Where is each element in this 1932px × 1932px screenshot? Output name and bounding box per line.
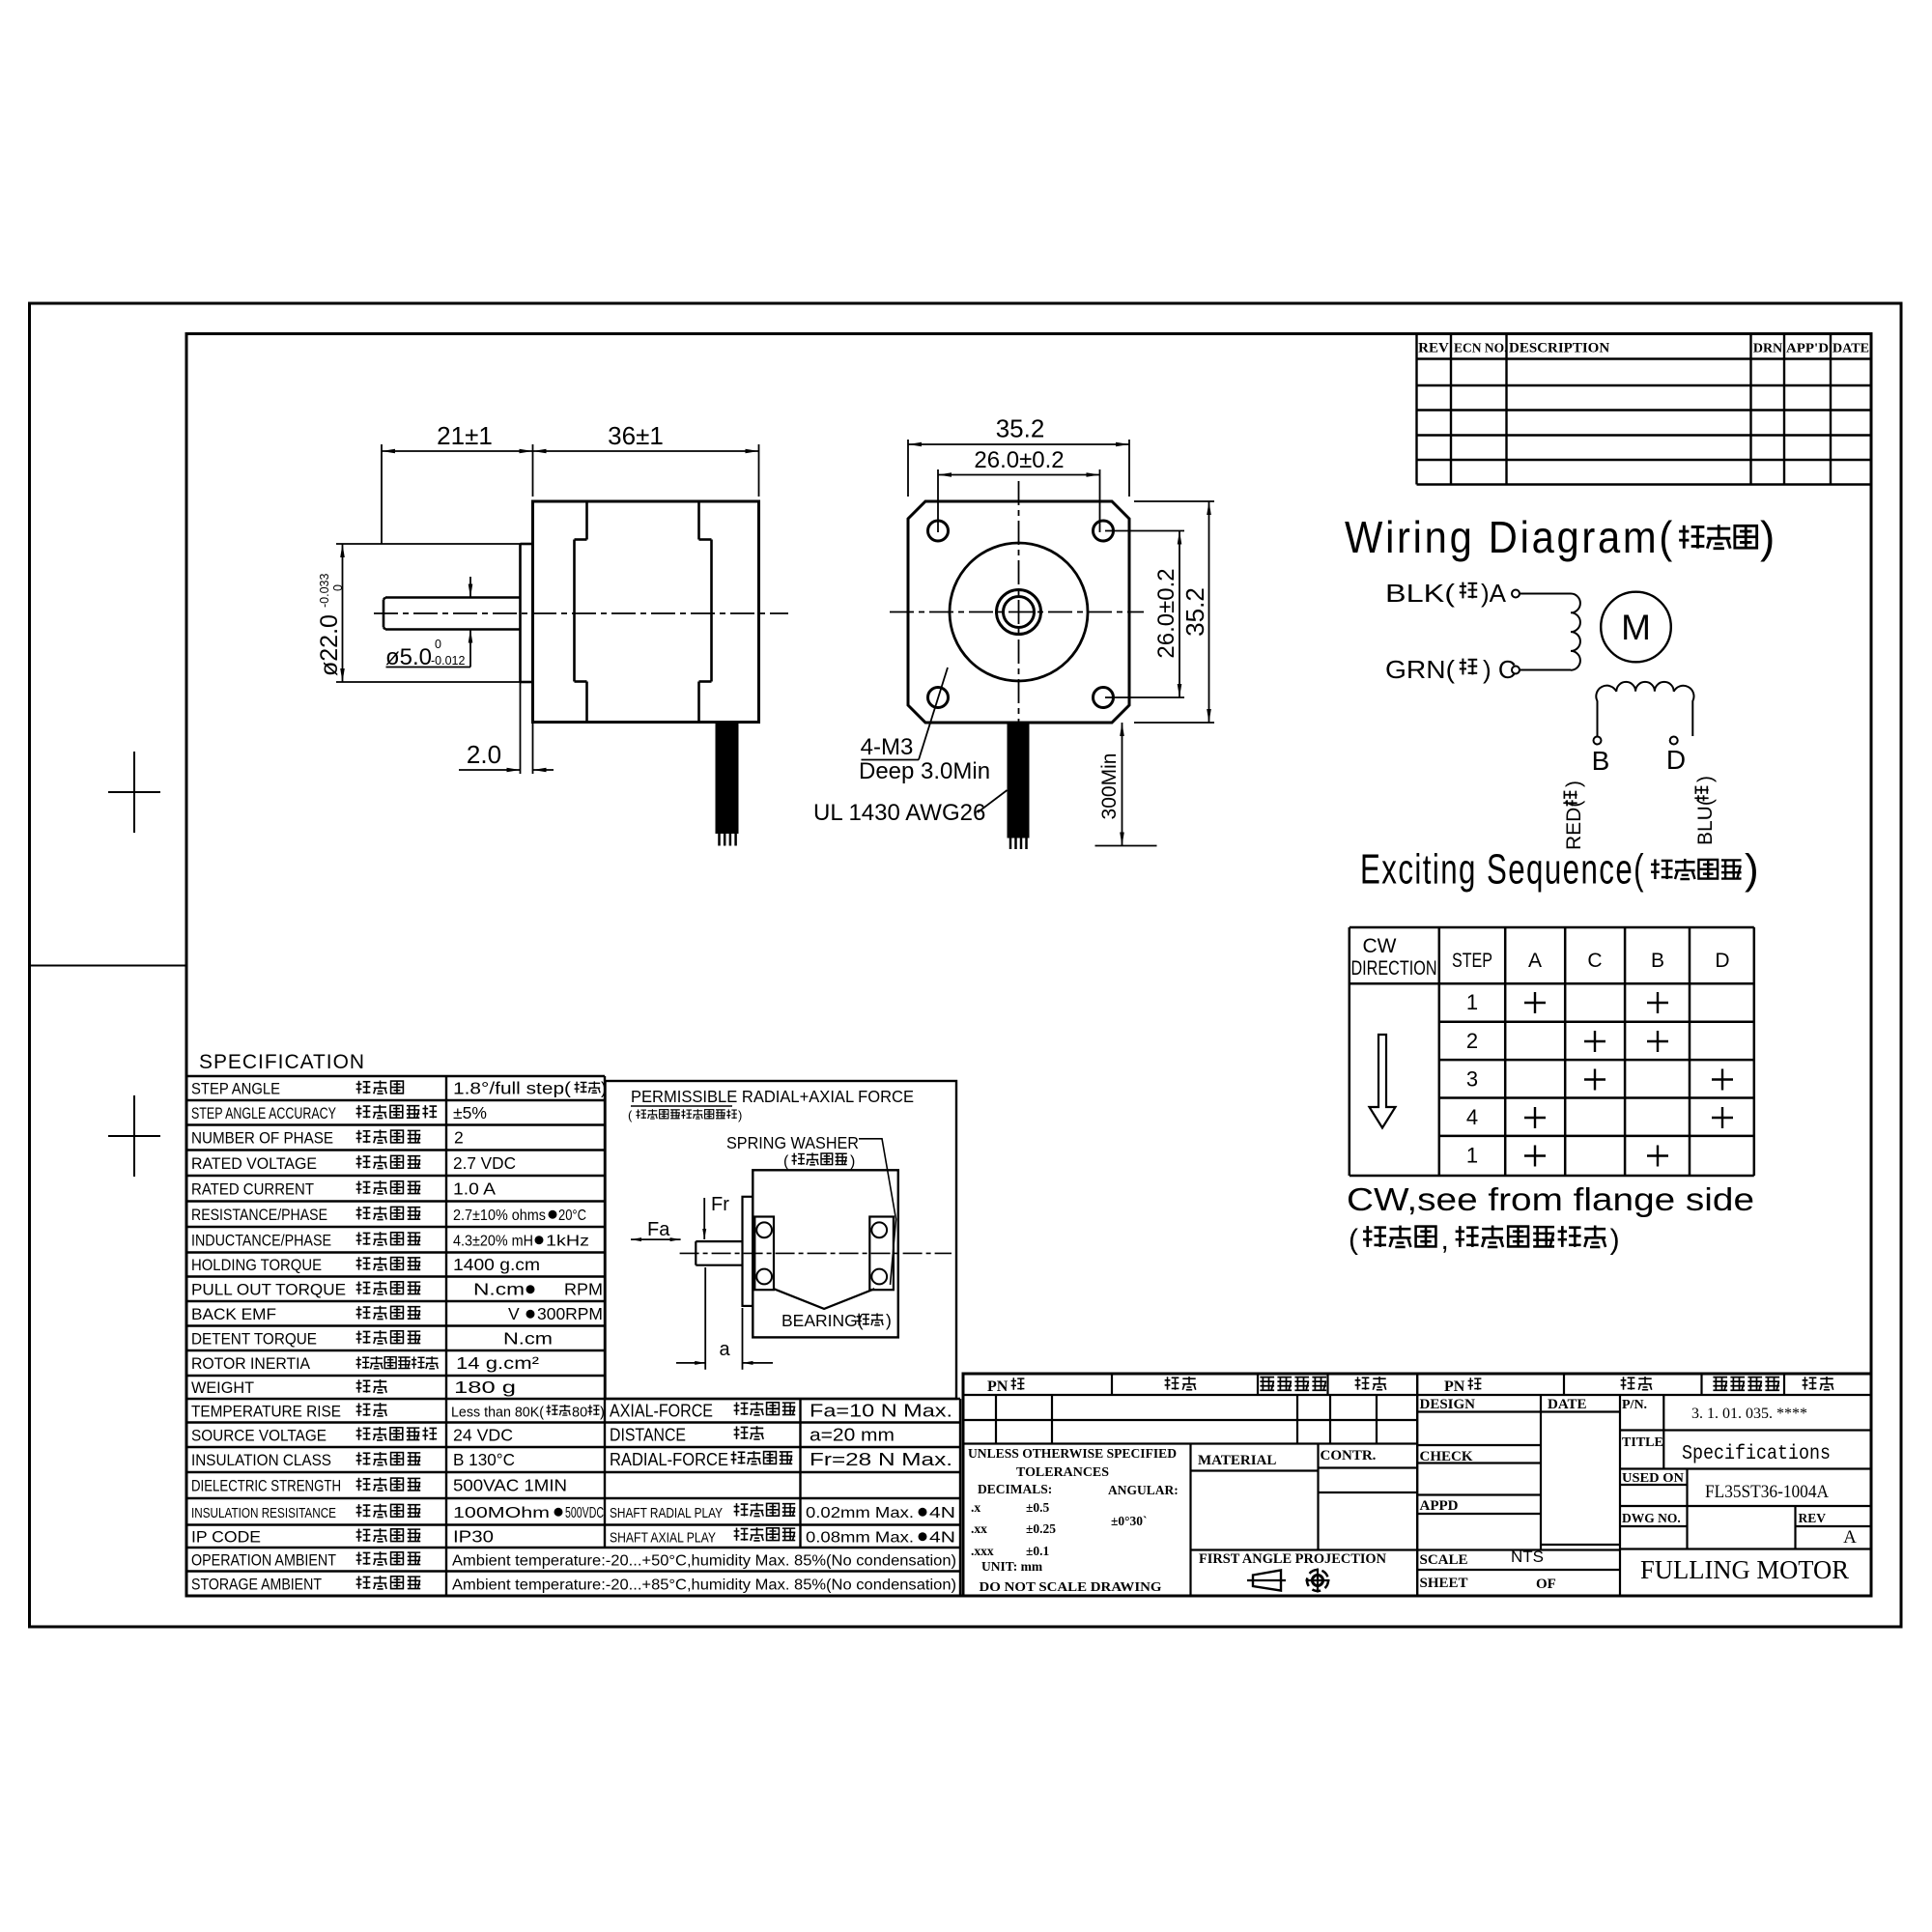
svg-text:GRN(: GRN( (1385, 655, 1455, 684)
svg-text:DWG NO.: DWG NO. (1622, 1511, 1681, 1525)
svg-text:UNIT: mm: UNIT: mm (981, 1559, 1043, 1574)
svg-text:B: B (1651, 950, 1664, 972)
svg-text:1kHz: 1kHz (546, 1233, 589, 1249)
svg-text:): ) (1563, 781, 1585, 787)
svg-text:USED ON: USED ON (1622, 1470, 1684, 1485)
svg-text:2: 2 (454, 1128, 464, 1148)
svg-text:DETENT TORQUE: DETENT TORQUE (191, 1330, 317, 1348)
svg-text:N.cm: N.cm (473, 1279, 525, 1298)
svg-text:24 VDC: 24 VDC (453, 1425, 513, 1444)
svg-text:RPM: RPM (564, 1279, 603, 1298)
svg-text:1400 g.cm: 1400 g.cm (453, 1255, 540, 1274)
svg-text:MATERIAL: MATERIAL (1198, 1453, 1276, 1468)
svg-text:): ) (850, 1153, 855, 1170)
svg-text:2.7 VDC: 2.7 VDC (453, 1153, 516, 1173)
svg-text:): ) (738, 1108, 742, 1122)
svg-text:SHEET: SHEET (1420, 1576, 1468, 1591)
svg-text:2.0: 2.0 (467, 740, 501, 769)
svg-text:Ambient temperature:-20...+85°: Ambient temperature:-20...+85°C,humidity… (452, 1577, 956, 1593)
svg-text:Fr: Fr (711, 1194, 729, 1215)
svg-text:±0.25: ±0.25 (1026, 1521, 1056, 1536)
svg-text:FL35ST36-1004A: FL35ST36-1004A (1705, 1482, 1829, 1502)
svg-text:±0.5: ±0.5 (1026, 1500, 1050, 1515)
svg-text:Fr=28 N Max.: Fr=28 N Max. (810, 1450, 952, 1469)
svg-text:)A: )A (1481, 579, 1507, 608)
svg-text:-0.012: -0.012 (431, 654, 465, 668)
svg-text:SPECIFICATION: SPECIFICATION (199, 1051, 365, 1073)
svg-text:A: A (1528, 950, 1542, 972)
svg-text:RATED VOLTAGE: RATED VOLTAGE (191, 1155, 317, 1173)
svg-text:1: 1 (1466, 990, 1478, 1014)
svg-text:C: C (1587, 950, 1602, 972)
svg-text:TITLE: TITLE (1622, 1435, 1663, 1450)
svg-text:B 130°C: B 130°C (453, 1450, 515, 1469)
svg-text:Exciting Sequence(: Exciting Sequence( (1360, 846, 1645, 894)
svg-text:ANGULAR:: ANGULAR: (1108, 1483, 1179, 1497)
svg-text:FULLING MOTOR: FULLING MOTOR (1640, 1555, 1849, 1584)
svg-text:RATED CURRENT: RATED CURRENT (191, 1180, 314, 1198)
svg-text:2: 2 (1466, 1029, 1478, 1053)
svg-text:35.2: 35.2 (1180, 587, 1209, 637)
svg-text:1.0 A: 1.0 A (453, 1179, 496, 1198)
svg-text:NTS: NTS (1511, 1548, 1544, 1566)
svg-text:CHECK: CHECK (1420, 1449, 1473, 1464)
svg-text:26.0±0.2: 26.0±0.2 (974, 447, 1064, 473)
svg-text:0.08mm Max.: 0.08mm Max. (806, 1529, 914, 1546)
svg-text:IP30: IP30 (453, 1526, 494, 1546)
svg-text:V: V (508, 1304, 520, 1323)
svg-text:): ) (1760, 512, 1775, 562)
svg-text:HOLDING TORQUE: HOLDING TORQUE (191, 1257, 322, 1274)
svg-text:-0.033: -0.033 (318, 574, 331, 608)
svg-text:DRN: DRN (1753, 342, 1782, 356)
svg-text:DISTANCE: DISTANCE (610, 1425, 686, 1444)
svg-text:RADIAL-FORCE: RADIAL-FORCE (610, 1450, 728, 1469)
svg-text:20°C: 20°C (558, 1207, 586, 1224)
svg-text:BACK EMF: BACK EMF (191, 1306, 276, 1323)
svg-text:OPERATION AMBIENT: OPERATION AMBIENT (191, 1551, 336, 1569)
svg-text:500VDC: 500VDC (565, 1505, 604, 1521)
svg-text:Specifications: Specifications (1682, 1443, 1831, 1465)
svg-text:WEIGHT: WEIGHT (191, 1379, 254, 1397)
svg-text:SHAFT AXIAL PLAY: SHAFT AXIAL PLAY (610, 1530, 716, 1546)
svg-text:PN: PN (987, 1378, 1009, 1395)
svg-text:STEP ANGLE: STEP ANGLE (191, 1081, 280, 1098)
svg-text:0.02mm Max.: 0.02mm Max. (806, 1505, 914, 1521)
svg-text:TOLERANCES: TOLERANCES (1016, 1464, 1109, 1479)
svg-text:APP'D: APP'D (1786, 342, 1829, 356)
svg-text:DO NOT SCALE DRAWING: DO NOT SCALE DRAWING (980, 1579, 1163, 1594)
svg-text:): ) (1745, 846, 1759, 894)
svg-text:B: B (1592, 746, 1610, 776)
svg-text:RED(: RED( (1563, 801, 1585, 850)
svg-text:,: , (1441, 1224, 1449, 1256)
svg-text:PULL OUT TORQUE: PULL OUT TORQUE (191, 1281, 346, 1298)
svg-text:): ) (1694, 776, 1717, 782)
svg-text:4N: 4N (929, 1505, 955, 1521)
svg-text:(: ( (628, 1108, 633, 1122)
svg-text:NUMBER OF PHASE: NUMBER OF PHASE (191, 1130, 333, 1148)
svg-text:35.2: 35.2 (996, 414, 1045, 443)
svg-text:CW: CW (1363, 935, 1397, 957)
svg-text:BLU(: BLU( (1694, 799, 1717, 845)
svg-text:2.7±10% ohms: 2.7±10% ohms (453, 1207, 546, 1224)
svg-text:1.8°/full step(: 1.8°/full step( (453, 1079, 571, 1098)
svg-text:36±1: 36±1 (608, 421, 664, 450)
svg-text:IP CODE: IP CODE (191, 1528, 261, 1546)
svg-text:): ) (886, 1311, 892, 1330)
svg-text:26.0±0.2: 26.0±0.2 (1153, 568, 1179, 658)
svg-text:±0°30`: ±0°30` (1111, 1514, 1148, 1528)
svg-text:PN: PN (1444, 1378, 1465, 1395)
svg-text:DESIGN: DESIGN (1420, 1397, 1476, 1412)
svg-text:INSULATION RESISITANCE: INSULATION RESISITANCE (191, 1506, 336, 1521)
svg-text:SOURCE VOLTAGE: SOURCE VOLTAGE (191, 1427, 327, 1444)
svg-text:D: D (1715, 950, 1729, 972)
svg-text:4-M3: 4-M3 (861, 734, 914, 760)
svg-text:DATE: DATE (1548, 1397, 1587, 1412)
svg-text:0: 0 (435, 638, 441, 651)
svg-text:±5%: ±5% (453, 1103, 487, 1122)
svg-text:INDUCTANCE/PHASE: INDUCTANCE/PHASE (191, 1232, 331, 1249)
svg-text:SCALE: SCALE (1420, 1552, 1468, 1568)
svg-text:DATE: DATE (1833, 342, 1869, 356)
svg-text:Wiring Diagram(: Wiring Diagram( (1345, 512, 1675, 562)
svg-text:ø22.0: ø22.0 (316, 614, 343, 676)
svg-text:300Min: 300Min (1098, 753, 1121, 820)
svg-text:500VAC 1MIN: 500VAC 1MIN (453, 1476, 567, 1495)
svg-text:DESCRIPTION: DESCRIPTION (1509, 341, 1609, 356)
svg-text:OF: OF (1536, 1577, 1556, 1592)
svg-text:PERMISSIBLE RADIAL+AXIAL FORCE: PERMISSIBLE RADIAL+AXIAL FORCE (631, 1087, 914, 1106)
svg-text:STEP ANGLE ACCURACY: STEP ANGLE ACCURACY (191, 1105, 336, 1122)
svg-text:UL 1430 AWG26: UL 1430 AWG26 (813, 800, 985, 826)
svg-text:BEARING(: BEARING( (781, 1311, 864, 1330)
svg-text:UNLESS OTHERWISE SPECIFIED: UNLESS OTHERWISE SPECIFIED (968, 1446, 1177, 1461)
svg-text:REV: REV (1799, 1511, 1827, 1525)
svg-text:4.3±20% mH: 4.3±20% mH (453, 1233, 533, 1249)
svg-text:CW,see from flange side: CW,see from flange side (1347, 1181, 1754, 1217)
svg-text:P/N.: P/N. (1622, 1398, 1647, 1412)
svg-text:INSULATION CLASS: INSULATION CLASS (191, 1452, 331, 1469)
svg-text:Less than 80K(: Less than 80K( (451, 1405, 544, 1420)
svg-text:APPD: APPD (1420, 1498, 1459, 1514)
svg-text:300RPM: 300RPM (537, 1304, 603, 1323)
svg-text:REV: REV (1418, 341, 1449, 356)
svg-text:ECN NO.: ECN NO. (1454, 341, 1508, 355)
svg-text:80: 80 (572, 1405, 587, 1420)
svg-text:A: A (1843, 1527, 1857, 1548)
svg-text:N.cm: N.cm (503, 1328, 553, 1348)
svg-text:a: a (719, 1339, 730, 1360)
svg-text:4: 4 (1466, 1105, 1478, 1129)
svg-text:Deep 3.0Min: Deep 3.0Min (859, 758, 990, 784)
svg-text:Fa: Fa (647, 1219, 670, 1240)
svg-text:Fa=10 N Max.: Fa=10 N Max. (810, 1401, 952, 1420)
svg-text:): ) (600, 1405, 605, 1420)
svg-text:3. 1. 01. 035. ****: 3. 1. 01. 035. **** (1691, 1406, 1807, 1422)
svg-text:0: 0 (331, 584, 345, 591)
svg-text:100MOhm: 100MOhm (453, 1505, 550, 1521)
svg-text:±0.1: ±0.1 (1026, 1544, 1050, 1558)
svg-text:SPRING WASHER: SPRING WASHER (726, 1133, 859, 1152)
svg-text:14 g.cm²: 14 g.cm² (456, 1353, 539, 1373)
svg-text:): ) (601, 1079, 607, 1098)
svg-text:TEMPERATURE RISE: TEMPERATURE RISE (191, 1403, 341, 1420)
svg-text:4N: 4N (929, 1529, 955, 1546)
svg-text:(: ( (783, 1153, 789, 1170)
svg-text:1: 1 (1466, 1144, 1478, 1168)
svg-text:a=20 mm: a=20 mm (810, 1425, 895, 1444)
svg-text:Ambient temperature:-20...+50°: Ambient temperature:-20...+50°C,humidity… (452, 1552, 956, 1569)
svg-text:SHAFT RADIAL PLAY: SHAFT RADIAL PLAY (610, 1506, 723, 1521)
svg-text:M: M (1621, 608, 1651, 647)
svg-text:DIELECTRIC STRENGTH: DIELECTRIC STRENGTH (191, 1478, 341, 1495)
svg-text:.x: .x (971, 1500, 980, 1515)
svg-text:.xx: .xx (971, 1521, 987, 1536)
svg-text:FIRST ANGLE PROJECTION: FIRST ANGLE PROJECTION (1199, 1551, 1386, 1567)
svg-text:ø5.0: ø5.0 (385, 644, 432, 670)
svg-text:D: D (1666, 745, 1686, 775)
svg-text:(: ( (1349, 1224, 1358, 1256)
svg-text:CONTR.: CONTR. (1321, 1448, 1377, 1463)
svg-text:): ) (1610, 1224, 1620, 1256)
svg-text:RESISTANCE/PHASE: RESISTANCE/PHASE (191, 1207, 327, 1224)
svg-text:AXIAL-FORCE: AXIAL-FORCE (610, 1401, 713, 1420)
svg-text:3: 3 (1466, 1067, 1478, 1092)
svg-text:180 g: 180 g (454, 1378, 516, 1397)
svg-text:.xxx: .xxx (971, 1544, 994, 1558)
svg-text:ROTOR INERTIA: ROTOR INERTIA (191, 1355, 310, 1373)
svg-text:STEP: STEP (1452, 950, 1492, 972)
svg-text:DIRECTION: DIRECTION (1351, 957, 1437, 980)
svg-text:DECIMALS:: DECIMALS: (978, 1482, 1052, 1496)
svg-text:BLK(: BLK( (1385, 579, 1455, 608)
svg-text:STORAGE AMBIENT: STORAGE AMBIENT (191, 1576, 322, 1593)
svg-text:21±1: 21±1 (437, 421, 493, 450)
